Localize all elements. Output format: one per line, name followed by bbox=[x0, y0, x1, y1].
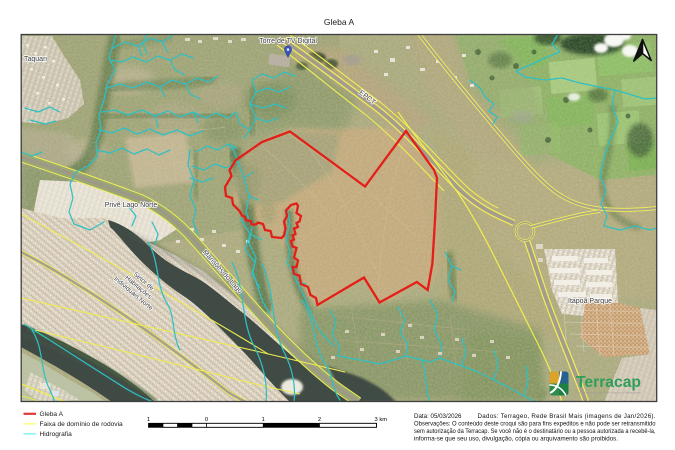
svg-text:1: 1 bbox=[147, 417, 150, 423]
svg-text:informa-se que seu uso, divulg: informa-se que seu uso, divulgação, cópi… bbox=[414, 436, 618, 443]
svg-text:Dados: Terrageo, Rede Brasi: Dados: Terrageo, Rede Brasil Mais (image… bbox=[478, 413, 656, 420]
svg-text:Gleba A: Gleba A bbox=[40, 411, 64, 418]
svg-text:Companhia Imobiliária de Brasí: Companhia Imobiliária de Brasília — Agên… bbox=[577, 390, 641, 394]
svg-text:Taquari: Taquari bbox=[24, 56, 47, 63]
svg-text:Hidrografia: Hidrografia bbox=[40, 431, 73, 438]
svg-text:sem autorização da Terracap. S: sem autorização da Terracap. Se você não… bbox=[414, 428, 656, 435]
svg-text:2: 2 bbox=[318, 417, 321, 423]
svg-text:Terracap: Terracap bbox=[576, 374, 641, 391]
svg-text:1: 1 bbox=[262, 417, 265, 423]
svg-text:Gleba A: Gleba A bbox=[324, 17, 355, 27]
svg-text:Data: 05/03/2026: Data: 05/03/2026 bbox=[414, 413, 462, 420]
svg-text:Observações: O conteúdo deste: Observações: O conteúdo deste croqui são… bbox=[414, 420, 656, 427]
svg-text:0: 0 bbox=[205, 417, 208, 423]
svg-text:Torre de TV Digital: Torre de TV Digital bbox=[259, 38, 317, 45]
svg-text:3 km: 3 km bbox=[375, 417, 388, 423]
svg-text:Itapoã Parque: Itapoã Parque bbox=[568, 298, 612, 305]
svg-text:Faixa de domínio de rodovia: Faixa de domínio de rodovia bbox=[40, 421, 124, 428]
svg-text:Privê Lago Norte: Privê Lago Norte bbox=[105, 202, 158, 209]
